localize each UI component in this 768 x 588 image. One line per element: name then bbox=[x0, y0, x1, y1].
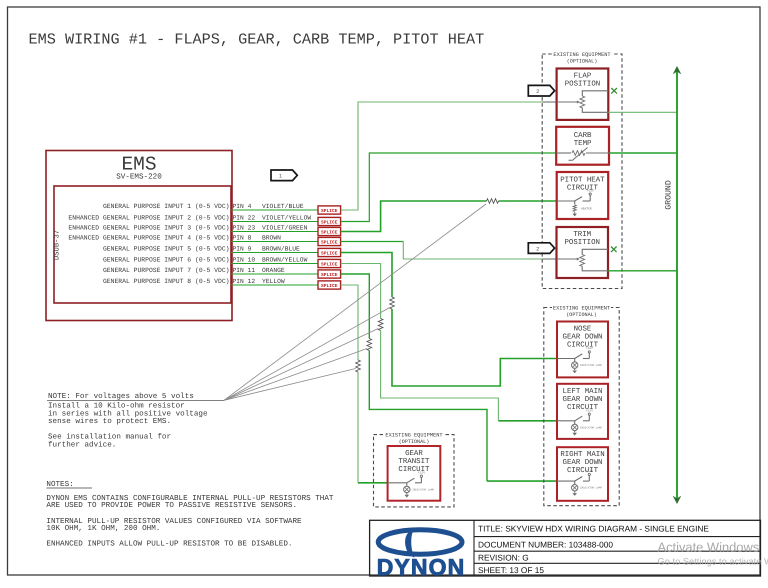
svg-text:PIN 8: PIN 8 bbox=[233, 235, 252, 242]
svg-text:+12V: +12V bbox=[418, 471, 425, 474]
svg-text:in series with all positive vo: in series with all positive voltage bbox=[48, 409, 208, 418]
svg-text:FLAP: FLAP bbox=[574, 73, 592, 81]
svg-text:BROWN: BROWN bbox=[262, 235, 281, 242]
svg-text:CARB: CARB bbox=[574, 132, 592, 140]
svg-text:ORANGE: ORANGE bbox=[262, 267, 285, 274]
svg-text:1: 1 bbox=[279, 174, 282, 180]
svg-text:PIN 22: PIN 22 bbox=[233, 215, 256, 222]
svg-text:Activate Windows: Activate Windows bbox=[658, 540, 760, 555]
svg-text:GROUND: GROUND bbox=[665, 180, 674, 210]
svg-text:GENERAL PURPOSE INPUT 1 (0-5 V: GENERAL PURPOSE INPUT 1 (0-5 VDC) bbox=[103, 203, 230, 210]
svg-text:VIOLET/GREEN: VIOLET/GREEN bbox=[262, 225, 308, 232]
svg-text:+12V: +12V bbox=[586, 409, 593, 412]
svg-text:SPLICE: SPLICE bbox=[321, 239, 338, 245]
svg-text:POSITION: POSITION bbox=[565, 81, 600, 89]
svg-text:2: 2 bbox=[536, 246, 539, 252]
svg-text:Go to Settings to activate Win: Go to Settings to activate Windows. bbox=[658, 557, 768, 567]
svg-text:CIRCUIT: CIRCUIT bbox=[567, 467, 599, 475]
svg-text:YELLOW: YELLOW bbox=[262, 278, 285, 285]
svg-text:EXISTING EQUIPMENT: EXISTING EQUIPMENT bbox=[553, 306, 610, 312]
svg-text:(OPTIONAL): (OPTIONAL) bbox=[566, 312, 597, 318]
svg-text:GENERAL PURPOSE INPUT 6 (0-5 V: GENERAL PURPOSE INPUT 6 (0-5 VDC) bbox=[103, 257, 230, 264]
svg-text:VIOLET/BLUE: VIOLET/BLUE bbox=[262, 203, 304, 210]
svg-text:BROWN/YELLOW: BROWN/YELLOW bbox=[262, 257, 308, 264]
svg-text:SPLICE: SPLICE bbox=[321, 208, 338, 214]
svg-text:+12V: +12V bbox=[587, 189, 594, 192]
svg-text:SPLICE: SPLICE bbox=[321, 229, 338, 235]
svg-text:REVISION: G: REVISION: G bbox=[478, 552, 529, 562]
svg-text:GEAR: GEAR bbox=[405, 450, 423, 458]
svg-text:INDICATOR LAMP: INDICATOR LAMP bbox=[580, 487, 602, 490]
svg-text:PIN 9: PIN 9 bbox=[233, 246, 252, 253]
svg-text:further advice.: further advice. bbox=[48, 440, 116, 449]
svg-text:10K OHM, 1K OHM, 200 OHM.: 10K OHM, 1K OHM, 200 OHM. bbox=[46, 524, 160, 533]
svg-text:ENHANCED INPUTS ALLOW PULL-UP: ENHANCED INPUTS ALLOW PULL-UP RESISTOR T… bbox=[46, 540, 292, 549]
svg-text:INDICATOR LAMP: INDICATOR LAMP bbox=[412, 488, 434, 491]
svg-text:SV-EMS-220: SV-EMS-220 bbox=[116, 173, 162, 182]
svg-text:TRIM: TRIM bbox=[573, 231, 591, 239]
svg-text:TRANSIT: TRANSIT bbox=[398, 458, 430, 466]
svg-text:CIRCUIT: CIRCUIT bbox=[398, 466, 430, 474]
svg-text:RIGHT MAIN: RIGHT MAIN bbox=[560, 451, 604, 459]
svg-text:GEAR DOWN: GEAR DOWN bbox=[563, 334, 603, 342]
svg-text:ENHANCED GENERAL PURPOSE INPUT: ENHANCED GENERAL PURPOSE INPUT 2 (0-5 VD… bbox=[68, 215, 229, 222]
svg-text:SPLICE: SPLICE bbox=[321, 261, 338, 267]
svg-text:PIN 11: PIN 11 bbox=[233, 267, 256, 274]
svg-text:GEAR DOWN: GEAR DOWN bbox=[563, 459, 603, 467]
svg-text:See installation manual for: See installation manual for bbox=[48, 433, 171, 442]
svg-text:SPLICE: SPLICE bbox=[321, 272, 338, 278]
svg-text:HEATER: HEATER bbox=[581, 208, 592, 211]
svg-text:LEFT MAIN: LEFT MAIN bbox=[563, 388, 603, 396]
svg-text:+12V: +12V bbox=[586, 470, 593, 473]
svg-text:VIOLET/YELLOW: VIOLET/YELLOW bbox=[262, 215, 311, 222]
svg-text:CIRCUIT: CIRCUIT bbox=[567, 342, 599, 350]
svg-text:TITLE: SKYVIEW HDX WIRING DIAG: TITLE: SKYVIEW HDX WIRING DIAGRAM - SING… bbox=[478, 524, 709, 534]
svg-text:PIN 10: PIN 10 bbox=[233, 257, 256, 264]
svg-text:Install a 10 Kilo-ohm resistor: Install a 10 Kilo-ohm resistor bbox=[48, 402, 185, 411]
svg-text:GENERAL PURPOSE INPUT 7 (0-5 V: GENERAL PURPOSE INPUT 7 (0-5 VDC) bbox=[103, 267, 230, 274]
svg-text:DSUB-37: DSUB-37 bbox=[54, 230, 62, 260]
svg-text:EMS WIRING #1 - FLAPS, GEAR, C: EMS WIRING #1 - FLAPS, GEAR, CARB TEMP, … bbox=[29, 31, 485, 49]
svg-text:ENHANCED GENERAL PURPOSE INPUT: ENHANCED GENERAL PURPOSE INPUT 4 (0-5 VD… bbox=[68, 235, 229, 242]
svg-text:TEMP: TEMP bbox=[574, 140, 592, 148]
svg-text:+12V: +12V bbox=[586, 347, 593, 350]
svg-text:NOSE: NOSE bbox=[574, 326, 592, 334]
svg-text:GENERAL PURPOSE INPUT 5 (0-5 V: GENERAL PURPOSE INPUT 5 (0-5 VDC) bbox=[103, 246, 230, 253]
svg-text:GEAR DOWN: GEAR DOWN bbox=[563, 396, 603, 404]
svg-text:SPLICE: SPLICE bbox=[321, 219, 338, 225]
svg-text:SHEET: 13 OF 15: SHEET: 13 OF 15 bbox=[478, 565, 544, 575]
svg-text:DOCUMENT NUMBER: 103488-000: DOCUMENT NUMBER: 103488-000 bbox=[478, 539, 613, 549]
svg-text:PITOT HEAT: PITOT HEAT bbox=[560, 176, 605, 184]
svg-text:DYNON: DYNON bbox=[377, 554, 466, 580]
svg-text:(OPTIONAL): (OPTIONAL) bbox=[399, 439, 430, 445]
svg-text:(OPTIONAL): (OPTIONAL) bbox=[567, 58, 598, 64]
svg-text:2: 2 bbox=[536, 89, 539, 95]
svg-text:ENHANCED GENERAL PURPOSE INPUT: ENHANCED GENERAL PURPOSE INPUT 3 (0-5 VD… bbox=[68, 225, 229, 232]
svg-text:PIN 4: PIN 4 bbox=[233, 203, 252, 210]
svg-text:NOTE: For voltages above 5 vol: NOTE: For voltages above 5 volts bbox=[48, 392, 194, 401]
svg-text:sense wires to protect EMS.: sense wires to protect EMS. bbox=[48, 417, 171, 426]
svg-text:INDICATOR LAMP: INDICATOR LAMP bbox=[580, 426, 602, 429]
svg-text:EMS: EMS bbox=[121, 154, 156, 176]
svg-text:GENERAL PURPOSE INPUT 8 (0-5 V: GENERAL PURPOSE INPUT 8 (0-5 VDC) bbox=[103, 278, 230, 285]
svg-text:PIN 12: PIN 12 bbox=[233, 278, 256, 285]
svg-text:BROWN/BLUE: BROWN/BLUE bbox=[262, 246, 300, 253]
svg-text:SPLICE: SPLICE bbox=[321, 250, 338, 256]
svg-text:POSITION: POSITION bbox=[565, 239, 600, 247]
svg-text:CIRCUIT: CIRCUIT bbox=[567, 404, 599, 412]
svg-text:INDICATOR LAMP: INDICATOR LAMP bbox=[580, 364, 602, 367]
svg-text:PIN 23: PIN 23 bbox=[233, 225, 256, 232]
svg-text:SPLICE: SPLICE bbox=[321, 283, 338, 289]
svg-text:EXISTING EQUIPMENT: EXISTING EQUIPMENT bbox=[553, 52, 610, 58]
svg-text:ARE USED TO PROVIDE POWER TO P: ARE USED TO PROVIDE POWER TO PASSIVE RES… bbox=[46, 501, 297, 510]
svg-text:EXISTING EQUIPMENT: EXISTING EQUIPMENT bbox=[385, 433, 442, 439]
